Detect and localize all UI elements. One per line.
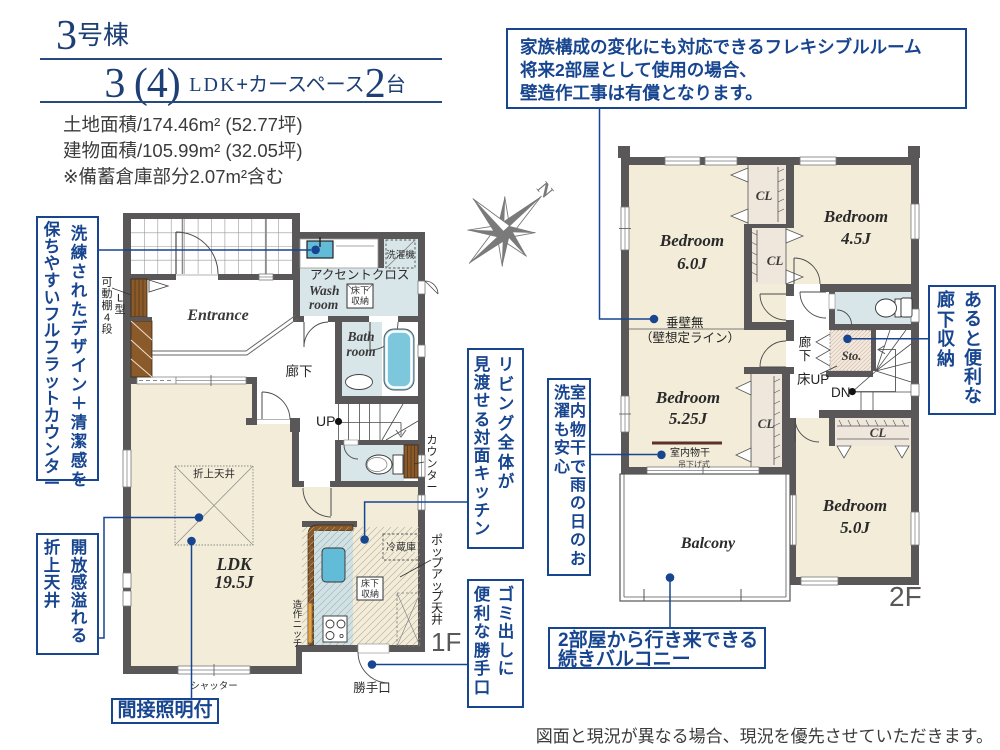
svg-text:19.5J: 19.5J xyxy=(214,572,255,592)
svg-text:room: room xyxy=(346,344,375,359)
svg-text:勝手口: 勝手口 xyxy=(353,680,391,695)
svg-text:チ: チ xyxy=(293,638,303,649)
svg-text:4: 4 xyxy=(104,312,110,324)
svg-text:下: 下 xyxy=(799,349,812,363)
svg-text:ウ: ウ xyxy=(427,445,438,458)
svg-text:アクセントクロス: アクセントクロス xyxy=(310,268,409,282)
svg-text:Bedroom: Bedroom xyxy=(659,231,724,250)
svg-text:棚: 棚 xyxy=(102,298,113,312)
svg-text:室内物干: 室内物干 xyxy=(670,446,710,459)
svg-text:Sto.: Sto. xyxy=(842,349,862,363)
svg-text:型: 型 xyxy=(115,302,126,316)
svg-text:CL: CL xyxy=(758,416,775,431)
svg-text:5.0J: 5.0J xyxy=(840,518,870,537)
svg-text:2F: 2F xyxy=(889,581,922,612)
svg-text:廊下: 廊下 xyxy=(286,363,313,379)
svg-text:（壁想定ライン）: （壁想定ライン） xyxy=(640,330,740,345)
svg-text:洗濯機: 洗濯機 xyxy=(386,249,415,261)
svg-text:床下: 床下 xyxy=(351,285,369,296)
svg-text:収納: 収納 xyxy=(351,295,369,306)
svg-text:Entrance: Entrance xyxy=(186,307,248,324)
svg-text:UP: UP xyxy=(316,413,335,429)
svg-text:段: 段 xyxy=(102,322,113,336)
svg-text:廊: 廊 xyxy=(799,335,812,350)
svg-text:LDK: LDK xyxy=(216,554,253,574)
svg-text:吊下げ式: 吊下げ式 xyxy=(678,459,710,469)
svg-text:DN: DN xyxy=(831,385,851,400)
svg-text:6.0J: 6.0J xyxy=(677,254,707,273)
svg-text:1F: 1F xyxy=(431,627,461,657)
svg-text:Bedroom: Bedroom xyxy=(655,388,720,407)
svg-text:ン: ン xyxy=(427,458,438,470)
svg-text:Wash: Wash xyxy=(309,283,340,298)
svg-text:井: 井 xyxy=(431,612,443,626)
svg-text:4.5J: 4.5J xyxy=(840,229,871,248)
svg-text:カ: カ xyxy=(427,433,438,446)
svg-text:CL: CL xyxy=(767,253,784,268)
svg-text:収納: 収納 xyxy=(361,588,379,599)
svg-text:L: L xyxy=(117,292,123,304)
svg-text:Bedroom: Bedroom xyxy=(822,496,887,515)
svg-text:Balcony: Balcony xyxy=(680,535,736,552)
svg-text:折上天井: 折上天井 xyxy=(193,467,235,480)
svg-text:動: 動 xyxy=(102,286,113,300)
svg-text:ー: ー xyxy=(427,482,438,494)
svg-text:冷蔵庫: 冷蔵庫 xyxy=(386,541,416,554)
svg-text:Bedroom: Bedroom xyxy=(823,207,888,226)
svg-text:シャッター: シャッター xyxy=(190,681,238,692)
svg-text:room: room xyxy=(309,297,338,312)
svg-text:CL: CL xyxy=(756,188,773,203)
svg-text:CL: CL xyxy=(870,425,887,440)
svg-text:N: N xyxy=(532,178,557,202)
svg-text:垂壁無: 垂壁無 xyxy=(666,315,704,330)
svg-text:可: 可 xyxy=(102,276,113,288)
svg-text:床下: 床下 xyxy=(361,578,379,589)
svg-text:Bath: Bath xyxy=(346,329,374,344)
svg-text:床UP: 床UP xyxy=(797,372,829,387)
svg-text:タ: タ xyxy=(427,469,438,482)
svg-text:5.25J: 5.25J xyxy=(669,409,708,428)
